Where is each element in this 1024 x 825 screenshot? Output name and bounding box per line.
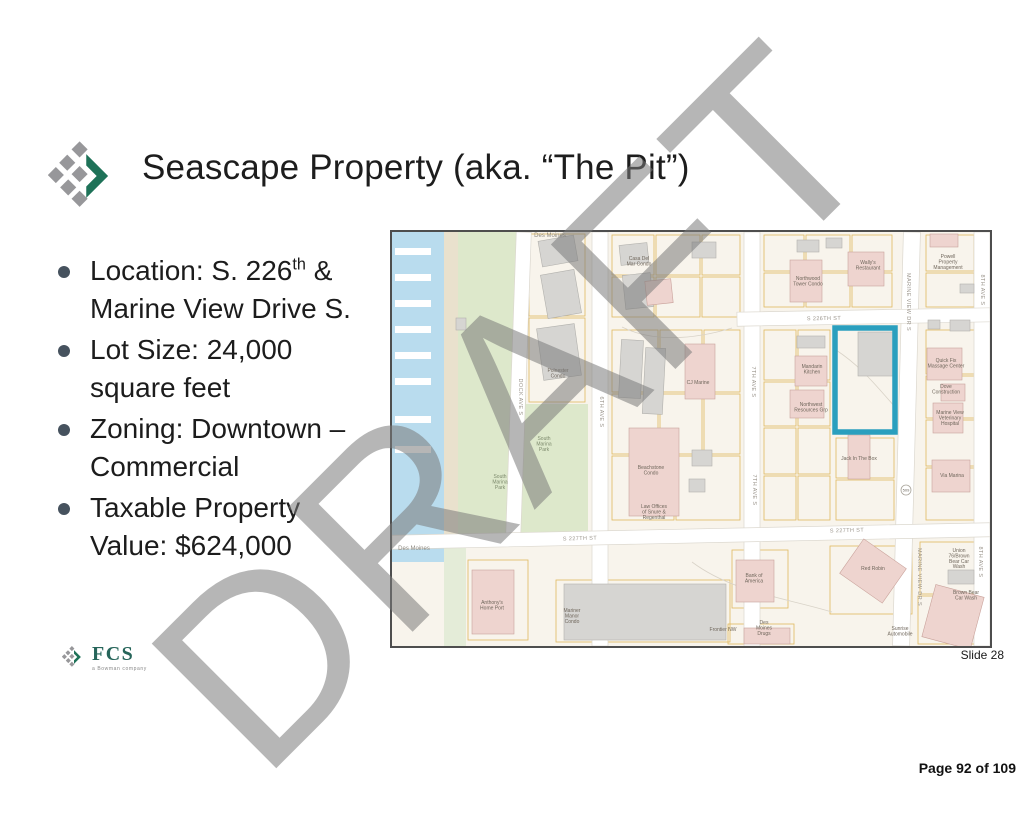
svg-text:7TH AVE S: 7TH AVE S bbox=[750, 366, 756, 397]
fcs-logo-text: FCS bbox=[92, 643, 147, 665]
svg-text:Brown BearCar Wash: Brown BearCar Wash bbox=[953, 590, 979, 601]
svg-text:S 227TH ST: S 227TH ST bbox=[830, 528, 865, 535]
bullet-dot bbox=[58, 345, 70, 357]
bullet-zoning-line1: Zoning: Downtown – bbox=[90, 410, 345, 448]
bullet-value-line1: Taxable Property bbox=[90, 489, 300, 527]
bullet-zoning-line2: Commercial bbox=[90, 448, 345, 486]
svg-text:Casa DelMar Condo: Casa DelMar Condo bbox=[627, 256, 652, 267]
bullet-value-line2: Value: $624,000 bbox=[90, 527, 300, 565]
svg-text:Jack In The Box: Jack In The Box bbox=[841, 456, 877, 462]
bullet-lot-line2: square feet bbox=[90, 369, 292, 407]
bullet-item-lot-size: Lot Size: 24,000 square feet bbox=[52, 331, 392, 407]
bullet-location-line2: Marine View Drive S. bbox=[90, 290, 351, 328]
svg-text:7TH AVE S: 7TH AVE S bbox=[751, 474, 757, 505]
slide-number: Slide 28 bbox=[961, 648, 1004, 662]
page-number: Page 92 of 109 bbox=[919, 760, 1016, 776]
svg-text:S 227TH ST: S 227TH ST bbox=[563, 536, 598, 543]
svg-text:Law Officesof Snure &Regenthal: Law Officesof Snure &Regenthal bbox=[641, 504, 668, 521]
bullet-location-line1: Location: S. 226th & bbox=[90, 252, 351, 290]
svg-text:Des Moines: Des Moines bbox=[534, 233, 566, 239]
svg-text:8TH AVE S: 8TH AVE S bbox=[977, 546, 983, 577]
svg-text:Red Robin: Red Robin bbox=[861, 566, 885, 572]
ordinal-suffix: th bbox=[292, 256, 306, 274]
svg-text:Via Marina: Via Marina bbox=[940, 473, 964, 479]
map-svg: 509S 226TH STS 227TH STS 227TH STDOCK AV… bbox=[392, 232, 990, 646]
svg-text:Frontier NW: Frontier NW bbox=[710, 627, 737, 633]
svg-text:MarinerManorCondo: MarinerManorCondo bbox=[564, 608, 581, 625]
svg-text:8TH AVE S: 8TH AVE S bbox=[979, 274, 985, 305]
svg-text:Anthony'sHome Port: Anthony'sHome Port bbox=[480, 600, 505, 611]
svg-text:MARINE VIEW DR S: MARINE VIEW DR S bbox=[905, 273, 911, 331]
chevron-icon bbox=[86, 154, 108, 198]
bullet-list: Location: S. 226th & Marine View Drive S… bbox=[52, 252, 392, 568]
fcs-diamond-chevron-logo-small bbox=[62, 645, 89, 669]
fcs-footer-logo: FCS a Bowman company bbox=[62, 643, 147, 672]
bullet-dot bbox=[58, 424, 70, 436]
svg-text:S 226TH ST: S 226TH ST bbox=[807, 316, 842, 323]
svg-text:6TH AVE S: 6TH AVE S bbox=[598, 396, 604, 427]
fcs-logo-tagline: a Bowman company bbox=[92, 666, 147, 672]
slide: Seascape Property (aka. “The Pit”) Locat… bbox=[0, 0, 1024, 791]
svg-text:MARINE VIEW DR S: MARINE VIEW DR S bbox=[916, 548, 922, 606]
chevron-icon bbox=[74, 650, 81, 664]
svg-text:Des Moines: Des Moines bbox=[398, 546, 430, 552]
bullet-dot bbox=[58, 266, 70, 278]
svg-text:CJ Marine: CJ Marine bbox=[687, 380, 710, 386]
bullet-item-location: Location: S. 226th & Marine View Drive S… bbox=[52, 252, 392, 328]
svg-text:DOCK AVE S: DOCK AVE S bbox=[517, 379, 523, 416]
bullet-lot-line1: Lot Size: 24,000 bbox=[90, 331, 292, 369]
page-title: Seascape Property (aka. “The Pit”) bbox=[142, 148, 862, 188]
svg-text:NorthwoodTower Condo: NorthwoodTower Condo bbox=[793, 276, 823, 287]
fcs-diamond-chevron-logo bbox=[48, 138, 134, 214]
svg-text:509: 509 bbox=[903, 488, 910, 493]
svg-text:Bank ofAmerica: Bank ofAmerica bbox=[745, 573, 764, 584]
bullet-item-taxable-value: Taxable Property Value: $624,000 bbox=[52, 489, 392, 565]
bullet-dot bbox=[58, 503, 70, 515]
property-map-image: 509S 226TH STS 227TH STS 227TH STDOCK AV… bbox=[390, 230, 992, 648]
svg-text:MandarinKitchen: MandarinKitchen bbox=[802, 364, 823, 375]
bullet-item-zoning: Zoning: Downtown – Commercial bbox=[52, 410, 392, 486]
